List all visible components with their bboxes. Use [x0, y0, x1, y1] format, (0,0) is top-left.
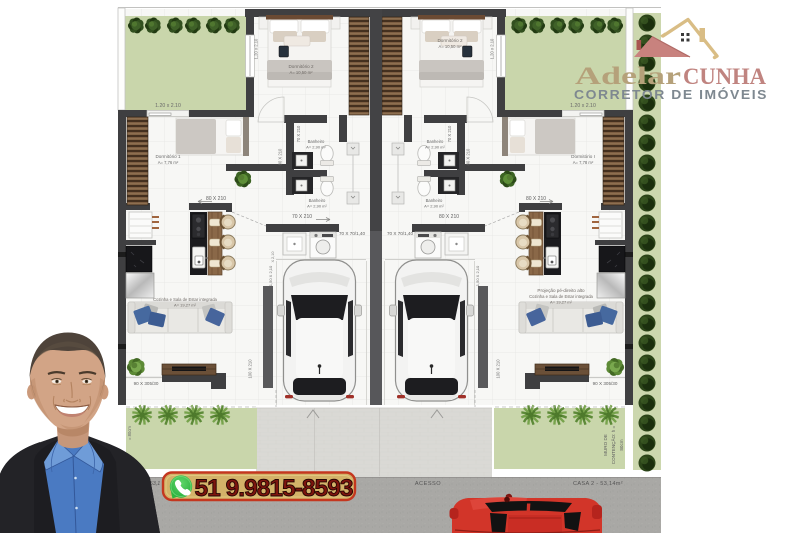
svg-text:100 X 210: 100 X 210	[496, 359, 501, 379]
svg-text:MURO DE: MURO DE	[603, 434, 608, 456]
svg-text:80 X 210: 80 X 210	[466, 148, 471, 165]
svg-text:1,50 X 2,10: 1,50 X 2,10	[475, 265, 480, 286]
svg-text:1.20 x 2.10: 1.20 x 2.10	[570, 103, 596, 109]
svg-text:70 X 210: 70 X 210	[447, 125, 452, 142]
svg-text:CORRETOR DE IMÓVEIS: CORRETOR DE IMÓVEIS	[574, 87, 768, 102]
svg-text:1,20 x 2,10: 1,20 x 2,10	[490, 38, 495, 59]
svg-text:Adelar: Adelar	[575, 63, 681, 90]
svg-text:Dormitório 2: Dormitório 2	[437, 38, 462, 43]
svg-text:51 9.9815-8593: 51 9.9815-8593	[195, 475, 353, 502]
svg-text:80cm: 80cm	[619, 439, 624, 450]
svg-text:A= 10,50 m²: A= 10,50 m²	[290, 70, 314, 75]
svg-text:CASA 2 - 53,14m²: CASA 2 - 53,14m²	[573, 481, 623, 487]
svg-text:Banheiro: Banheiro	[309, 198, 326, 203]
svg-text:Projeção pé-direito alto: Projeção pé-direito alto	[537, 288, 585, 293]
svg-text:A= 2,90 m²: A= 2,90 m²	[424, 204, 444, 209]
svg-text:A= 19,27 m²: A= 19,27 m²	[550, 300, 573, 305]
svg-text:A= 7,76 m²: A= 7,76 m²	[158, 160, 179, 165]
svg-text:X 2,10: X 2,10	[271, 252, 275, 263]
svg-text:ACESSO: ACESSO	[415, 481, 441, 487]
svg-text:70 X 70/1,40: 70 X 70/1,40	[387, 231, 413, 236]
svg-text:Banheiro: Banheiro	[427, 139, 444, 144]
svg-text:Cozinha e Sala de Estar integr: Cozinha e Sala de Estar integrada	[153, 297, 217, 302]
svg-text:A= 7,78 m²: A= 7,78 m²	[573, 160, 594, 165]
svg-text:A= 10,50 m²: A= 10,50 m²	[439, 44, 463, 49]
svg-text:Banheiro: Banheiro	[308, 139, 325, 144]
svg-text:A= 2,90 m²: A= 2,90 m²	[425, 145, 445, 150]
svg-text:Dormitório I: Dormitório I	[571, 154, 595, 159]
svg-text:Banheiro: Banheiro	[426, 198, 443, 203]
svg-text:80 X 210: 80 X 210	[439, 214, 459, 220]
svg-text:80 X 210: 80 X 210	[278, 148, 283, 165]
svg-text:A= 2,90 m²: A= 2,90 m²	[306, 145, 326, 150]
svg-text:Dormitório 2: Dormitório 2	[288, 64, 313, 69]
svg-text:= 80cm: = 80cm	[127, 426, 132, 440]
svg-text:1.20 x 2.10: 1.20 x 2.10	[155, 103, 181, 109]
svg-text:Dormitório 1: Dormitório 1	[155, 154, 180, 159]
svg-text:70 X 70/1,40: 70 X 70/1,40	[339, 231, 365, 236]
svg-text:A= 2,90 m²: A= 2,90 m²	[307, 204, 327, 209]
svg-text:70 X 210: 70 X 210	[292, 214, 312, 220]
svg-text:CONTENÇÃO: h =: CONTENÇÃO: h =	[610, 425, 616, 464]
svg-text:70 X 210: 70 X 210	[296, 125, 301, 142]
svg-text:90 X 305/30: 90 X 305/30	[593, 381, 618, 386]
svg-text:Cozinha e Sala de Estar integr: Cozinha e Sala de Estar integrada	[529, 294, 593, 299]
svg-text:CUNHA: CUNHA	[683, 64, 766, 89]
svg-text:A= 19,27 m²: A= 19,27 m²	[174, 303, 197, 308]
svg-text:90 X 305/30: 90 X 305/30	[134, 381, 159, 386]
svg-text:1,20 x 2,10: 1,20 x 2,10	[254, 38, 259, 59]
svg-text:1,50 X 2,10: 1,50 X 2,10	[268, 265, 273, 286]
svg-text:100 X 210: 100 X 210	[248, 359, 253, 379]
